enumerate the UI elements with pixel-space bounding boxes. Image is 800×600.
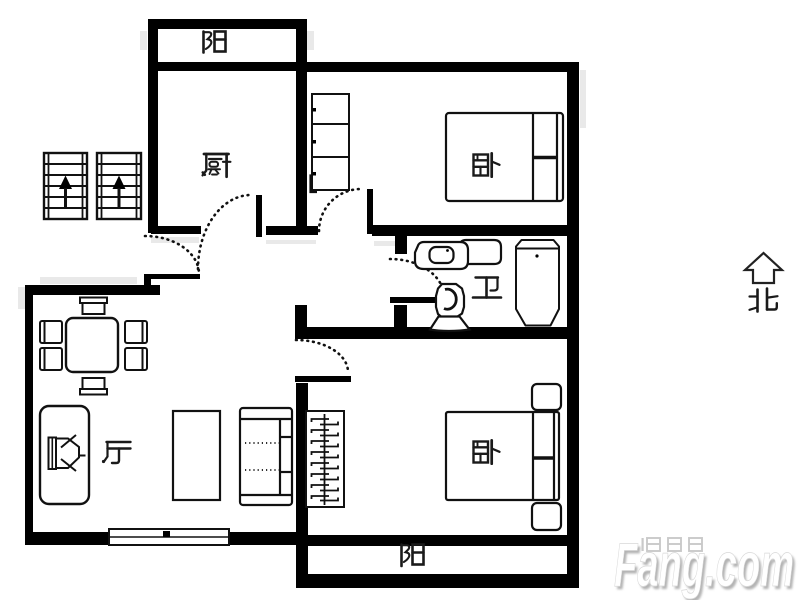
svg-text:Fang.com: Fang.com <box>614 531 794 600</box>
